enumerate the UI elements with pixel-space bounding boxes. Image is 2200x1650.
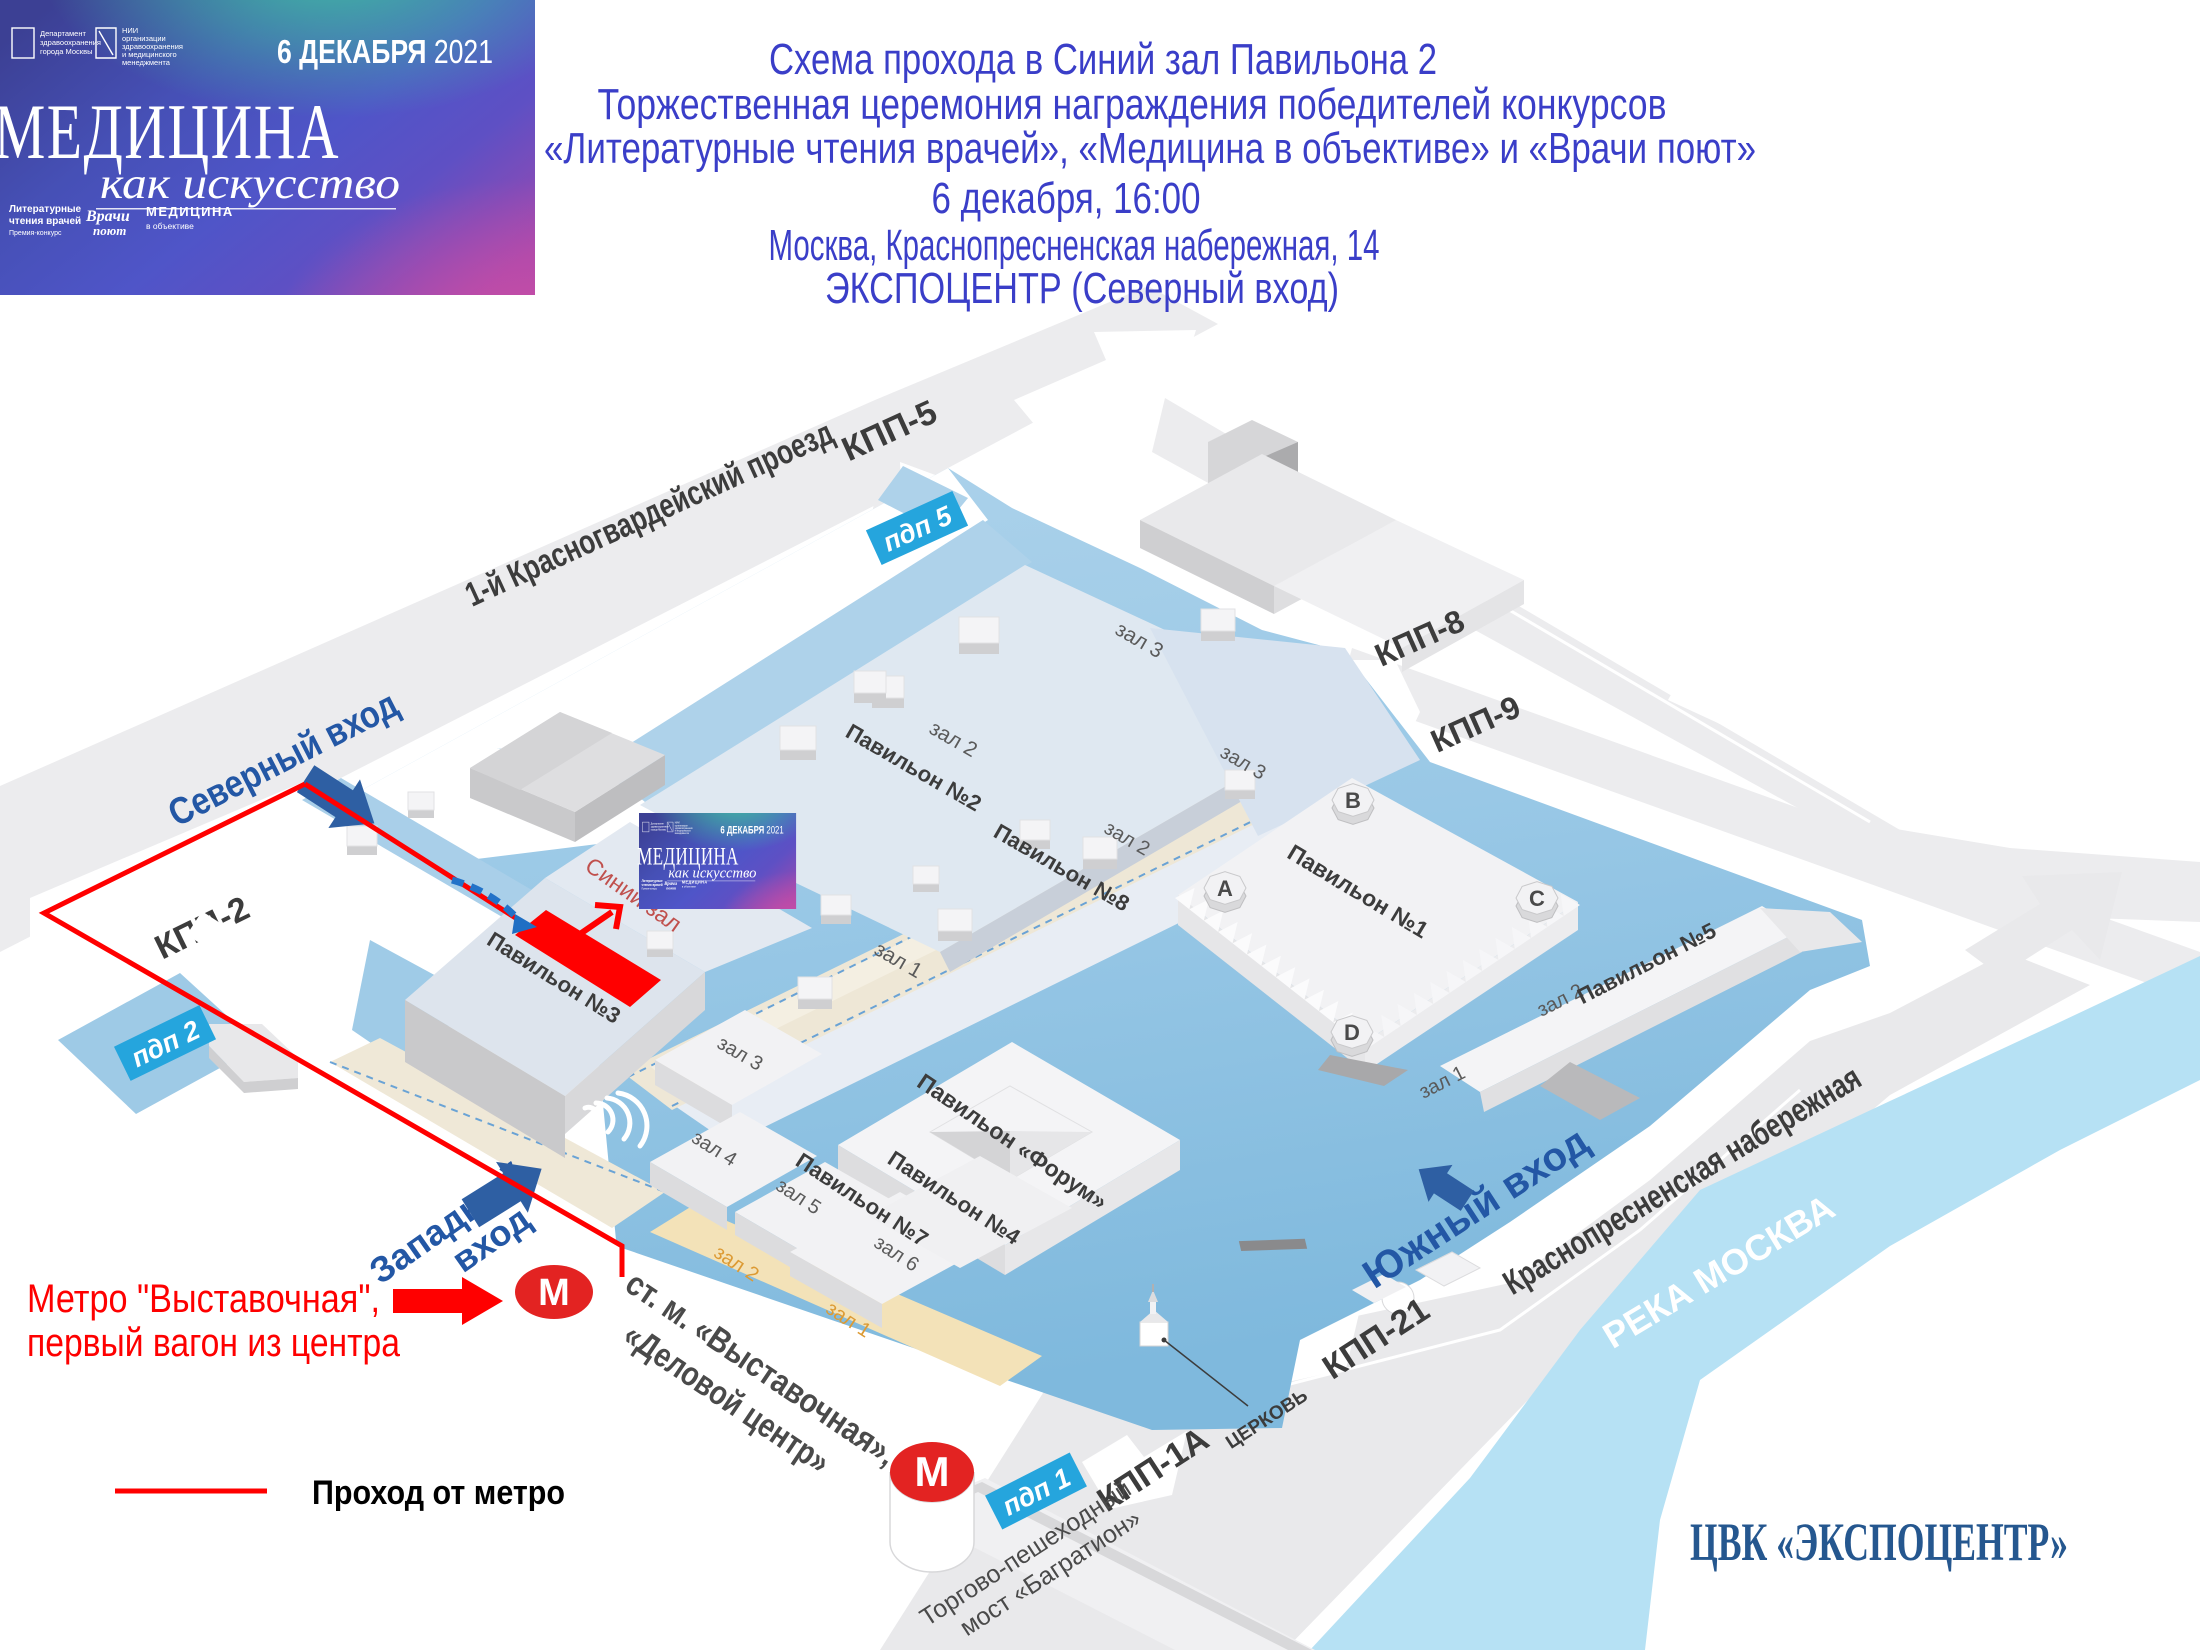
svg-text:МЕДИЦИНА: МЕДИЦИНА bbox=[146, 204, 234, 219]
svg-text:менеджмента: менеджмента bbox=[122, 58, 171, 67]
svg-text:Проход от метро: Проход от метро bbox=[312, 1474, 565, 1512]
svg-text:Литературные: Литературные bbox=[9, 204, 82, 215]
svg-text:ЦВК «ЭКСПОЦЕНТР»: ЦВК «ЭКСПОЦЕНТР» bbox=[1690, 1512, 2068, 1572]
svg-text:Метро "Выставочная",: Метро "Выставочная", bbox=[27, 1277, 380, 1321]
svg-text:D: D bbox=[1344, 1020, 1360, 1045]
svg-text:в объективе: в объективе bbox=[146, 221, 194, 231]
svg-text:Москва, Краснопресненская набе: Москва, Краснопресненская набережная, 14 bbox=[769, 221, 1380, 270]
svg-text:Торжественная церемония награж: Торжественная церемония награждения побе… bbox=[598, 80, 1667, 129]
svg-text:как искусство: как искусство bbox=[100, 159, 400, 208]
svg-text:B: B bbox=[1345, 788, 1361, 813]
svg-text:ЭКСПОЦЕНТР (Северный вход): ЭКСПОЦЕНТР (Северный вход) bbox=[825, 264, 1339, 313]
svg-text:A: A bbox=[1217, 876, 1233, 901]
svg-text:C: C bbox=[1529, 886, 1545, 911]
svg-text:М: М bbox=[538, 1272, 570, 1314]
svg-text:чтения врачей: чтения врачей bbox=[9, 216, 81, 227]
svg-text:здравоохранения: здравоохранения bbox=[40, 38, 101, 47]
svg-text:первый вагон из центра: первый вагон из центра bbox=[27, 1321, 401, 1365]
svg-text:6 ДЕКАБРЯ 2021: 6 ДЕКАБРЯ 2021 bbox=[277, 33, 493, 70]
svg-text:Премия-конкурс: Премия-конкурс bbox=[9, 230, 62, 237]
svg-text:«Литературные чтения врачей»,: «Литературные чтения врачей», «Медицина … bbox=[544, 124, 1756, 173]
svg-text:Департамент: Департамент bbox=[40, 29, 86, 38]
svg-text:Схема прохода в Синий зал Пави: Схема прохода в Синий зал Павильона 2 bbox=[769, 35, 1437, 84]
svg-text:поют: поют bbox=[93, 223, 126, 238]
svg-text:6 декабря, 16:00: 6 декабря, 16:00 bbox=[932, 174, 1201, 223]
svg-text:М: М bbox=[915, 1448, 950, 1495]
svg-text:города Москвы: города Москвы bbox=[40, 47, 92, 56]
